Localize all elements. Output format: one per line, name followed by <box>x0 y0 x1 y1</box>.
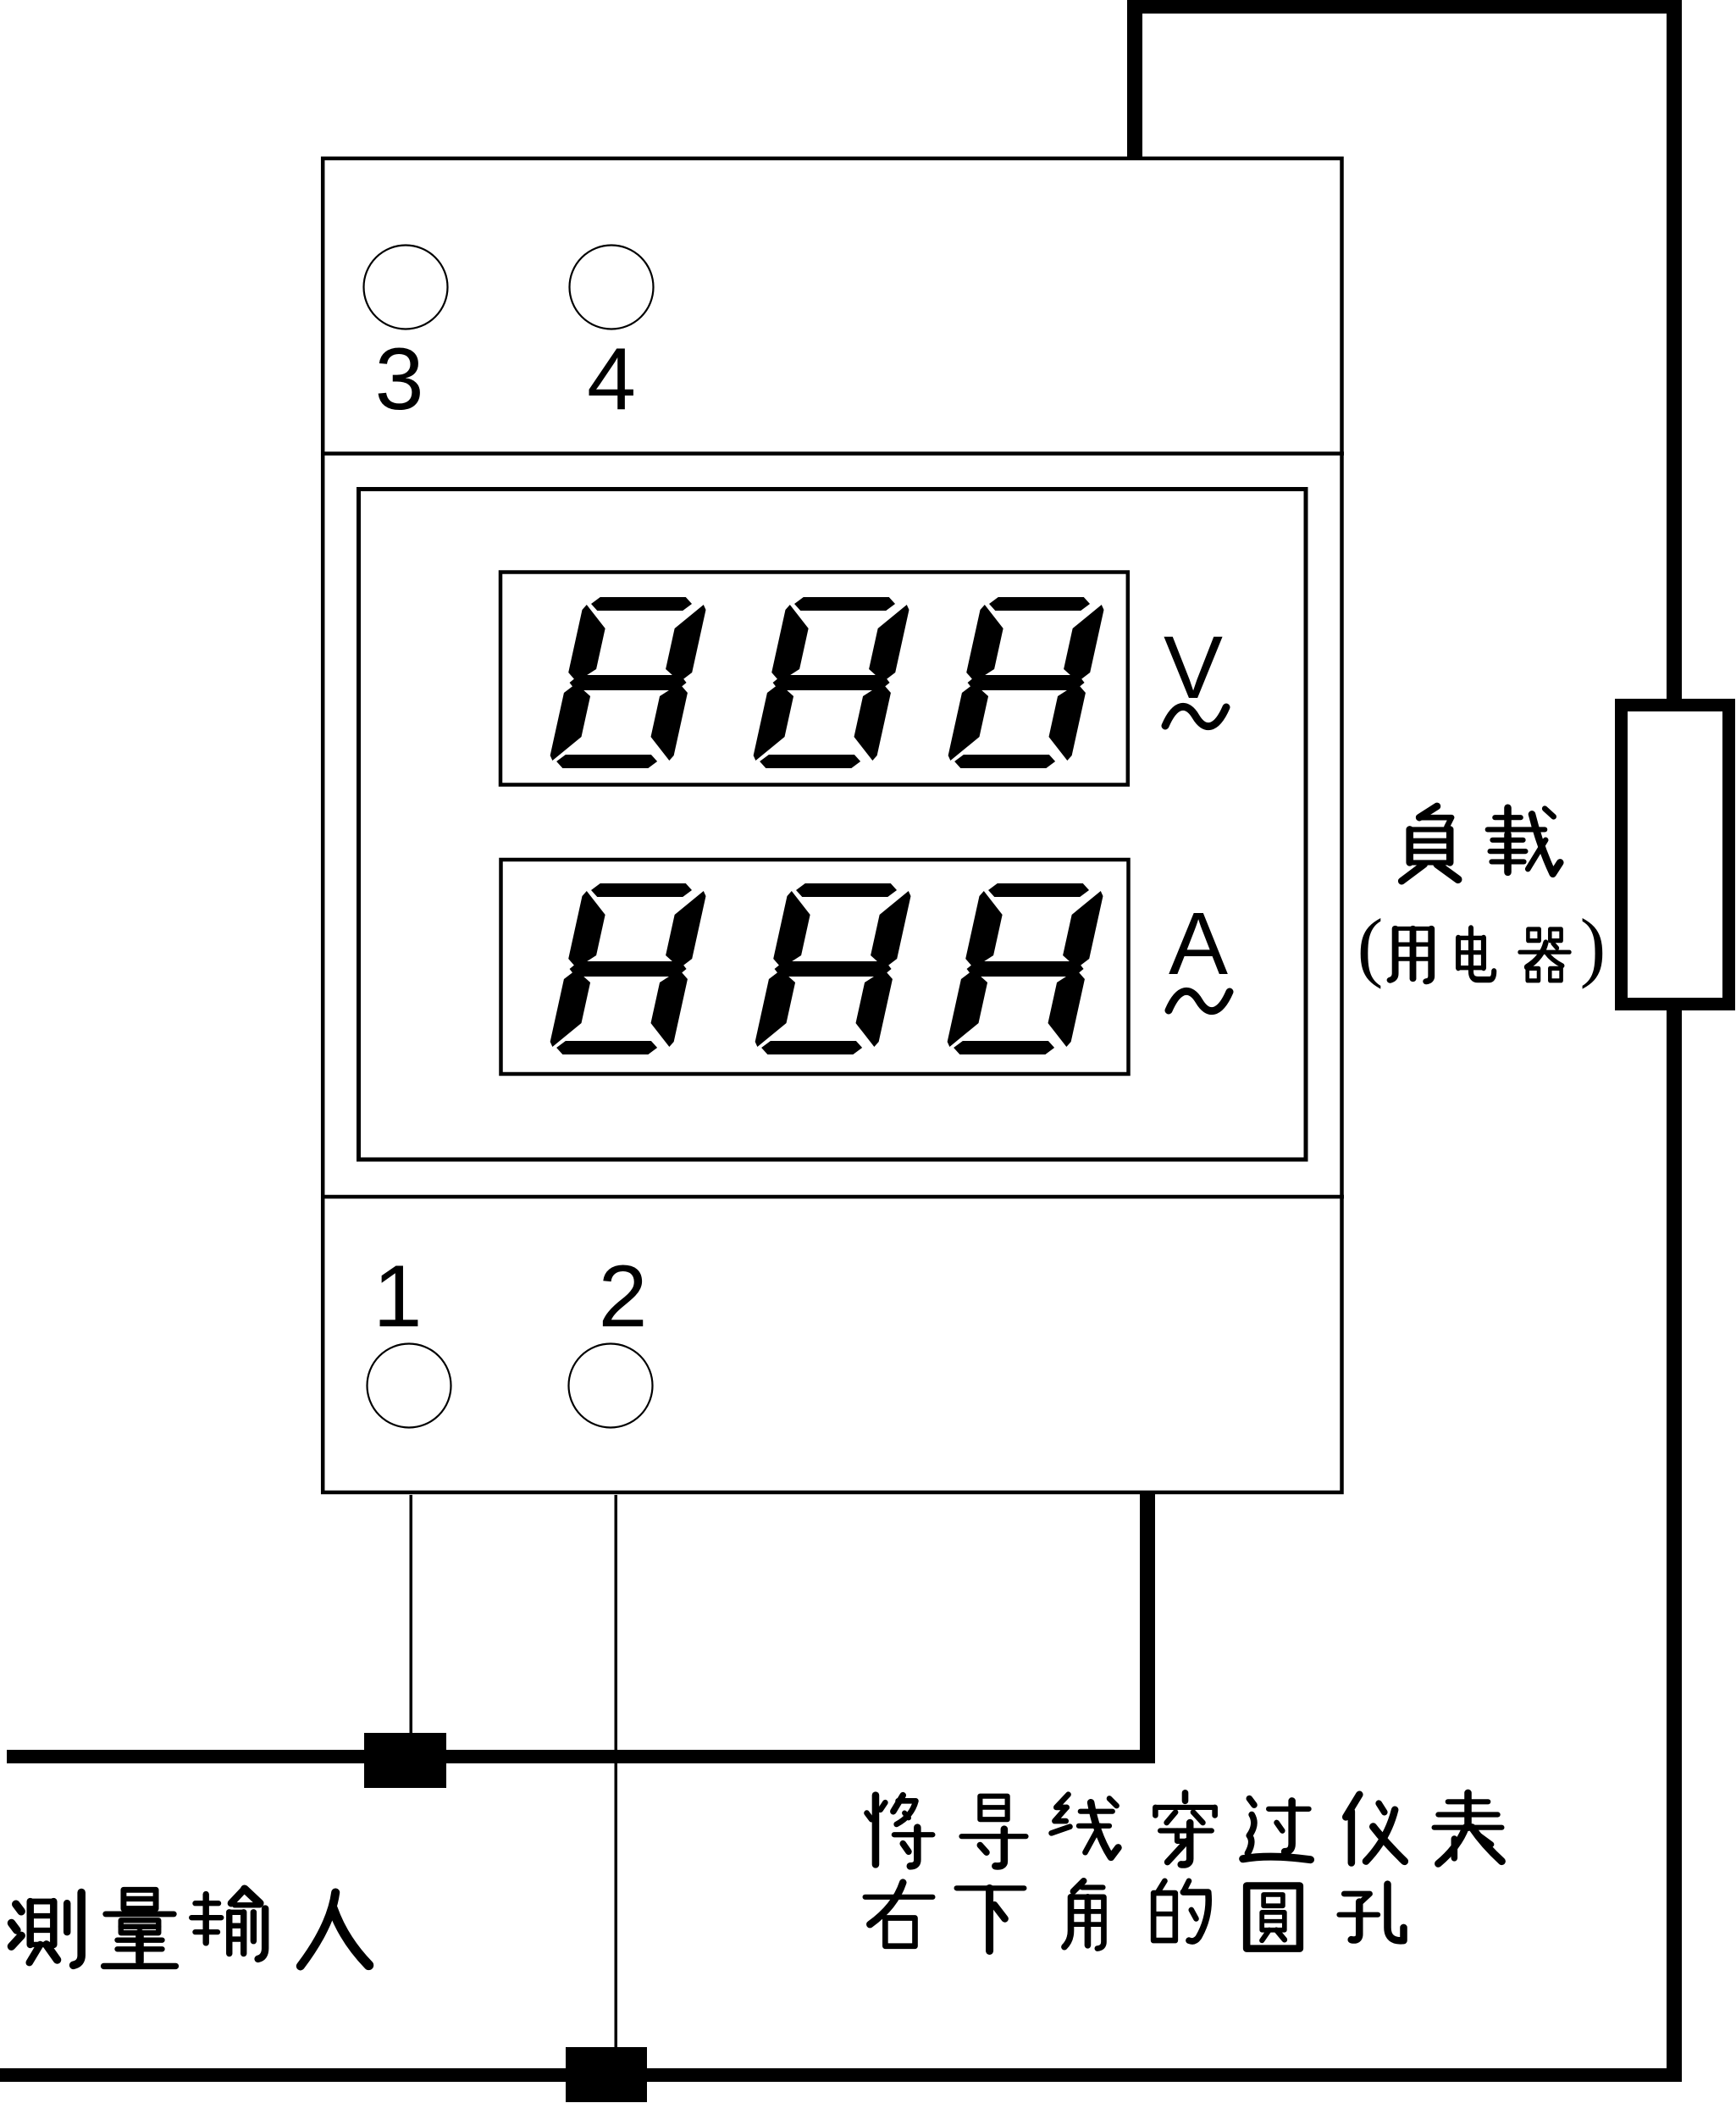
svg-text:V: V <box>1164 618 1223 717</box>
svg-text:2: 2 <box>599 1248 648 1346</box>
svg-text:): ) <box>1580 903 1606 989</box>
svg-text:A: A <box>1169 894 1228 993</box>
svg-text:3: 3 <box>375 330 424 429</box>
svg-text:4: 4 <box>587 330 636 429</box>
svg-text:1: 1 <box>373 1248 423 1346</box>
svg-text:(: ( <box>1357 903 1384 989</box>
